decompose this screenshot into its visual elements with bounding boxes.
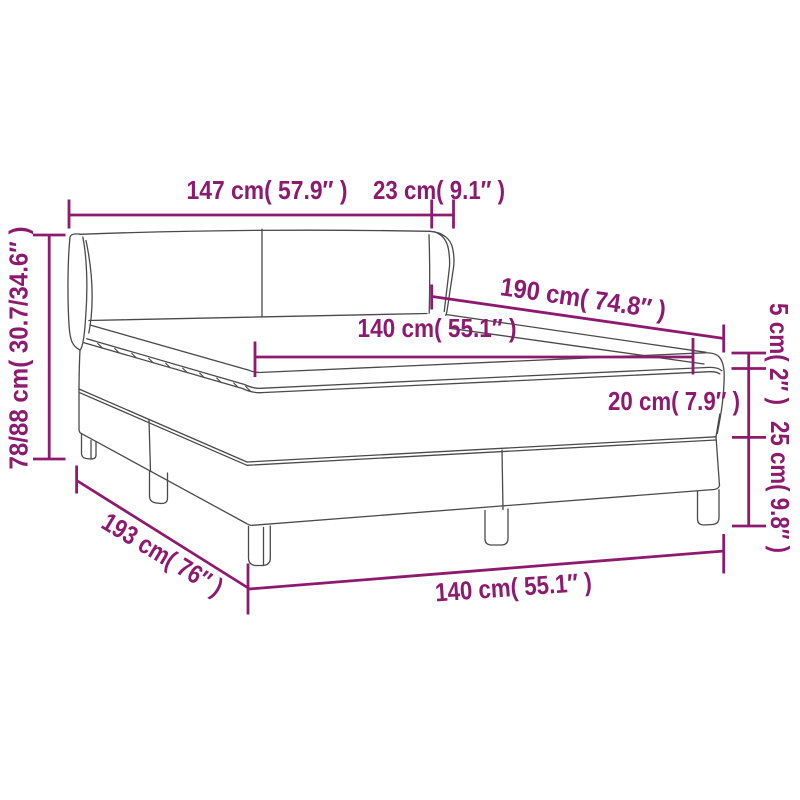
- svg-text:147 cm( 57.9″ ): 147 cm( 57.9″ ): [187, 175, 348, 205]
- svg-text:78/88 cm( 30.7/34.6″ ): 78/88 cm( 30.7/34.6″ ): [4, 227, 34, 470]
- svg-text:20 cm( 7.9″ ): 20 cm( 7.9″ ): [608, 386, 740, 416]
- svg-text:23 cm( 9.1″ ): 23 cm( 9.1″ ): [373, 175, 505, 205]
- svg-text:5 cm( 2″ ): 5 cm( 2″ ): [764, 303, 794, 405]
- svg-text:25 cm( 9.8″ ): 25 cm( 9.8″ ): [765, 421, 795, 553]
- svg-text:140 cm( 55.1″ ): 140 cm( 55.1″ ): [358, 313, 517, 343]
